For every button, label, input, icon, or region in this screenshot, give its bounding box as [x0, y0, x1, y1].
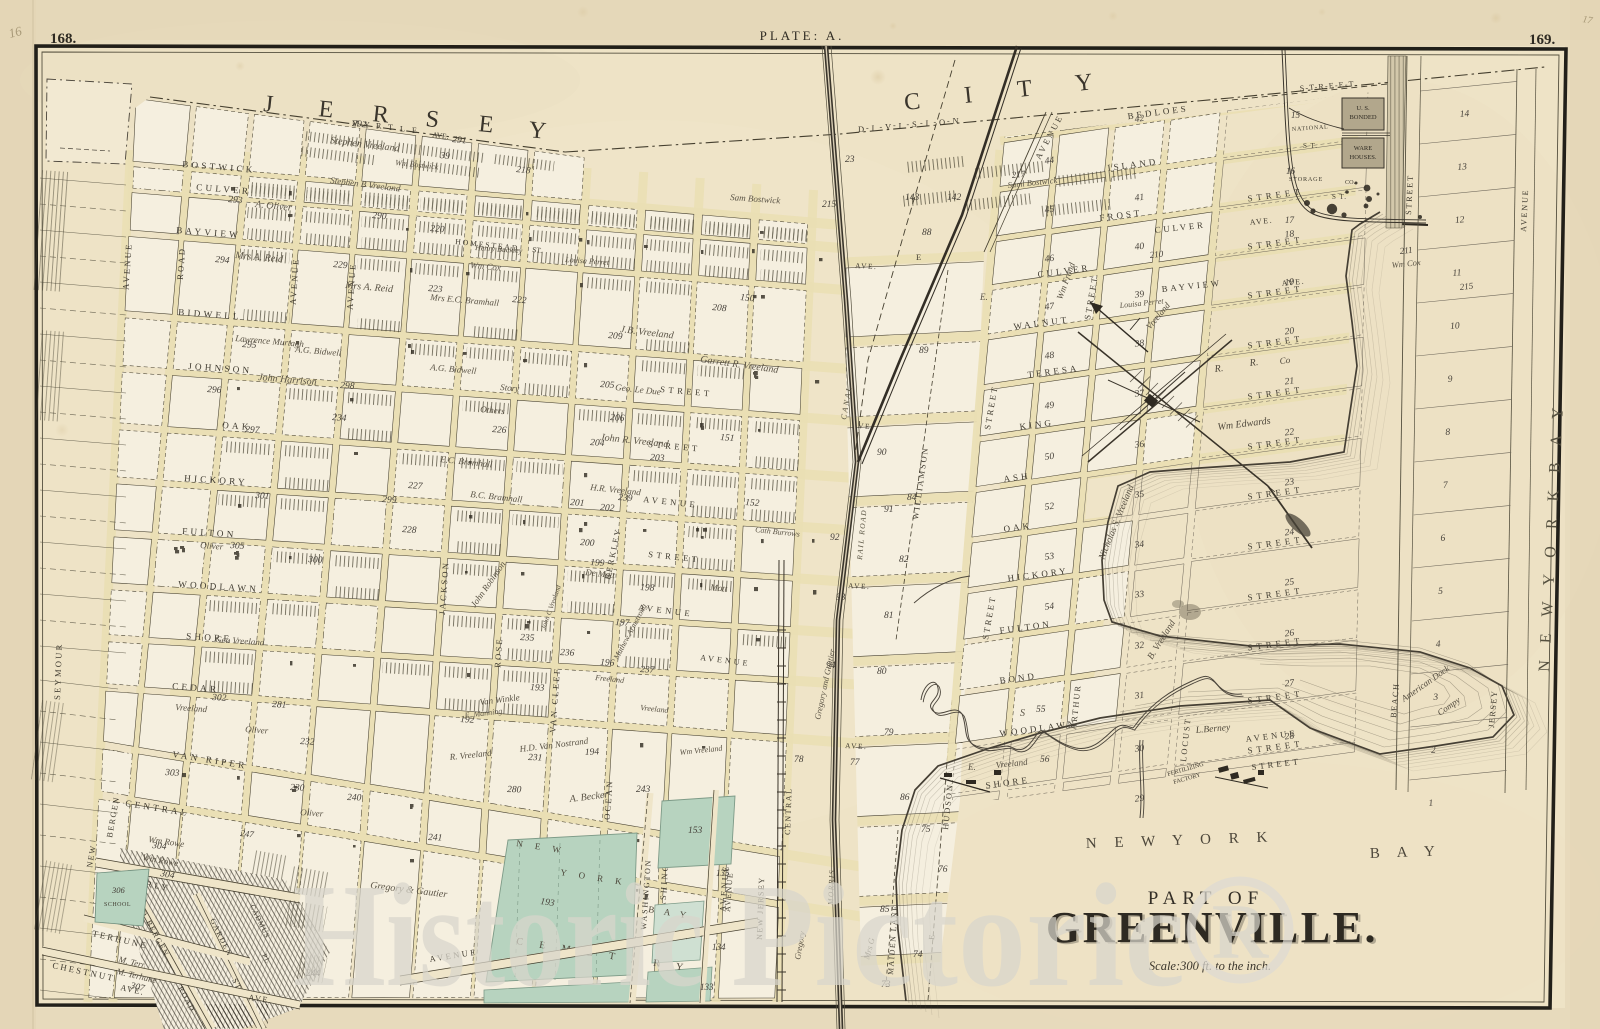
- svg-text:SEYMOUR: SEYMOUR: [52, 642, 64, 700]
- svg-text:E: E: [412, 126, 417, 135]
- svg-text:211: 211: [1399, 245, 1413, 256]
- svg-text:196: 196: [600, 658, 615, 669]
- svg-text:241: 241: [428, 833, 443, 843]
- svg-text:I: I: [926, 118, 929, 128]
- svg-text:201: 201: [570, 498, 585, 509]
- svg-text:46: 46: [1044, 254, 1055, 265]
- svg-text:STORAGE: STORAGE: [1289, 176, 1323, 183]
- svg-text:228: 228: [402, 525, 417, 536]
- svg-text:231: 231: [528, 753, 543, 763]
- svg-text:217: 217: [1011, 169, 1026, 180]
- svg-text:Mott: Mott: [709, 582, 728, 594]
- svg-text:53: 53: [1044, 552, 1055, 563]
- svg-text:77: 77: [850, 758, 861, 768]
- svg-text:33: 33: [1133, 590, 1145, 601]
- svg-text:290: 290: [372, 211, 387, 222]
- svg-text:281: 281: [272, 700, 287, 711]
- svg-text:15: 15: [1291, 110, 1301, 120]
- svg-text:230: 230: [290, 783, 305, 794]
- svg-text:E.: E.: [979, 292, 988, 302]
- svg-text:222: 222: [512, 295, 527, 306]
- svg-text:42: 42: [1134, 114, 1145, 125]
- svg-text:C: C: [903, 88, 922, 116]
- svg-text:R: R: [371, 101, 390, 129]
- svg-text:88: 88: [922, 228, 932, 238]
- svg-text:205: 205: [600, 380, 615, 391]
- svg-text:WARE: WARE: [1354, 145, 1372, 152]
- svg-text:S: S: [1020, 708, 1025, 719]
- svg-text:AVE.: AVE.: [855, 261, 878, 271]
- svg-text:56: 56: [1040, 755, 1050, 765]
- svg-text:134: 134: [712, 942, 726, 952]
- svg-text:Y: Y: [527, 117, 547, 145]
- svg-text:220: 220: [430, 224, 445, 235]
- svg-text:I: I: [872, 123, 875, 133]
- svg-text:305: 305: [229, 541, 245, 552]
- svg-text:89: 89: [919, 346, 929, 356]
- svg-text:ROSE: ROSE: [492, 637, 504, 668]
- svg-text:232: 232: [300, 737, 315, 748]
- svg-text:215: 215: [1459, 281, 1474, 292]
- svg-text:198: 198: [640, 583, 655, 594]
- svg-text:297: 297: [245, 425, 261, 436]
- svg-text:E: E: [317, 96, 334, 123]
- svg-text:91: 91: [884, 505, 894, 515]
- svg-text:50: 50: [1044, 452, 1055, 463]
- svg-text:26: 26: [1284, 628, 1295, 639]
- svg-text:R.: R.: [1248, 357, 1259, 369]
- svg-text:S: S: [424, 106, 440, 133]
- svg-text:193: 193: [530, 683, 545, 694]
- svg-text:218: 218: [516, 165, 531, 176]
- svg-text:R.: R.: [1213, 363, 1224, 375]
- svg-text:L: L: [400, 124, 405, 133]
- svg-text:194: 194: [585, 747, 600, 758]
- svg-text:152: 152: [745, 498, 760, 509]
- svg-text:D: D: [858, 124, 864, 134]
- svg-text:-: -: [866, 124, 869, 133]
- svg-text:21: 21: [1284, 376, 1295, 387]
- svg-text:20: 20: [1284, 326, 1295, 337]
- svg-text:V: V: [885, 122, 892, 132]
- svg-text:202: 202: [600, 503, 615, 514]
- svg-text:52: 52: [1044, 502, 1055, 513]
- svg-text:-: -: [880, 122, 883, 131]
- svg-text:-: -: [907, 120, 910, 129]
- svg-text:22: 22: [1284, 427, 1295, 438]
- svg-text:Pictoric: Pictoric: [731, 854, 1185, 1018]
- svg-text:-: -: [947, 116, 950, 125]
- svg-text:81: 81: [884, 611, 894, 621]
- svg-text:80: 80: [877, 667, 887, 677]
- svg-text:13: 13: [1457, 162, 1468, 173]
- svg-text:I: I: [899, 120, 902, 130]
- svg-text:44: 44: [1044, 156, 1055, 167]
- svg-text:78: 78: [794, 755, 804, 765]
- svg-text:49: 49: [1044, 401, 1055, 412]
- svg-text:Story: Story: [500, 382, 520, 394]
- svg-text:299: 299: [382, 495, 397, 506]
- svg-text:1: 1: [1428, 799, 1434, 809]
- svg-text:303: 303: [164, 768, 180, 779]
- svg-text:280: 280: [507, 785, 522, 795]
- svg-text:84: 84: [907, 493, 917, 503]
- svg-text:302: 302: [211, 693, 227, 704]
- svg-text:S T.: S T.: [1332, 193, 1347, 201]
- svg-text:135: 135: [716, 868, 730, 878]
- svg-text:206: 206: [610, 413, 625, 424]
- svg-text:153: 153: [688, 826, 703, 836]
- svg-text:168.: 168.: [50, 31, 77, 47]
- svg-text:32: 32: [1133, 641, 1145, 652]
- svg-text:227: 227: [408, 481, 424, 492]
- svg-text:PLATE: A.: PLATE: A.: [760, 28, 845, 43]
- svg-text:AVE.: AVE.: [848, 581, 871, 591]
- svg-text:90: 90: [877, 448, 887, 458]
- svg-text:236: 236: [560, 648, 575, 659]
- svg-text:235: 235: [520, 633, 535, 644]
- svg-text:208: 208: [712, 303, 727, 314]
- svg-text:210: 210: [1149, 249, 1164, 260]
- svg-text:T: T: [1016, 76, 1034, 103]
- svg-text:301: 301: [254, 491, 270, 502]
- svg-text:54: 54: [1044, 602, 1055, 613]
- svg-text:M: M: [352, 119, 359, 128]
- svg-text:306: 306: [111, 885, 126, 895]
- svg-text:-: -: [893, 121, 896, 130]
- svg-text:23: 23: [1284, 477, 1295, 488]
- svg-text:E: E: [477, 111, 494, 138]
- svg-text:CO.: CO.: [1345, 179, 1356, 186]
- svg-text:92: 92: [830, 533, 840, 543]
- svg-text:S: S: [912, 119, 917, 129]
- svg-text:25: 25: [1284, 577, 1295, 588]
- svg-text:ST.: ST.: [532, 245, 543, 255]
- svg-text:55: 55: [1036, 705, 1046, 715]
- svg-text:17: 17: [1285, 215, 1295, 225]
- svg-text:23: 23: [845, 155, 855, 165]
- svg-text:AVE.: AVE.: [845, 741, 868, 751]
- svg-text:E: E: [916, 252, 921, 262]
- svg-text:237: 237: [640, 665, 656, 676]
- svg-text:T: T: [388, 123, 393, 132]
- svg-text:14: 14: [1459, 109, 1470, 120]
- svg-text:Y: Y: [1074, 69, 1094, 97]
- svg-text:298: 298: [340, 381, 355, 392]
- svg-text:Co: Co: [1279, 355, 1291, 366]
- svg-text:79: 79: [884, 728, 894, 738]
- svg-text:24: 24: [1284, 527, 1295, 538]
- svg-text:R: R: [1212, 888, 1270, 975]
- svg-text:Historic: Historic: [293, 854, 704, 1018]
- svg-text:U. S.: U. S.: [1356, 105, 1370, 112]
- svg-text:Oliver: Oliver: [300, 807, 324, 819]
- svg-text:40: 40: [1134, 242, 1145, 253]
- svg-text:39: 39: [439, 151, 451, 162]
- svg-text:31: 31: [1133, 691, 1145, 702]
- svg-text:Y: Y: [364, 120, 370, 129]
- svg-text:16: 16: [1286, 166, 1296, 176]
- svg-text:BONDED: BONDED: [1349, 114, 1376, 121]
- svg-text:293: 293: [228, 195, 243, 206]
- svg-text:10: 10: [1450, 321, 1461, 332]
- svg-text:229: 229: [333, 260, 348, 271]
- svg-text:247: 247: [240, 828, 255, 839]
- svg-text:82: 82: [899, 555, 909, 565]
- svg-text:Oliver: Oliver: [200, 540, 224, 552]
- svg-text:41: 41: [1134, 193, 1145, 204]
- svg-text:B A Y: B A Y: [1370, 843, 1442, 862]
- svg-text:CENTRAL: CENTRAL: [783, 787, 794, 835]
- svg-text:226: 226: [492, 425, 507, 436]
- svg-text:240: 240: [347, 793, 362, 803]
- svg-text:18: 18: [1284, 229, 1295, 240]
- svg-text:203: 203: [650, 453, 665, 464]
- svg-text:296: 296: [207, 385, 222, 396]
- svg-text:36: 36: [1133, 440, 1145, 451]
- svg-text:151: 151: [720, 433, 735, 444]
- svg-text:SCHOOL: SCHOOL: [104, 902, 131, 908]
- svg-text:300: 300: [307, 555, 323, 566]
- svg-text:O: O: [939, 117, 945, 127]
- svg-text:48: 48: [1044, 351, 1055, 362]
- svg-text:200: 200: [580, 538, 595, 549]
- svg-text:-: -: [920, 119, 923, 128]
- svg-text:86: 86: [900, 793, 910, 803]
- svg-text:150: 150: [740, 293, 755, 304]
- svg-text:169.: 169.: [1529, 32, 1556, 48]
- svg-text:Oliver: Oliver: [245, 724, 269, 736]
- svg-text:234: 234: [332, 413, 347, 424]
- svg-text:12: 12: [1455, 215, 1466, 226]
- svg-text:11: 11: [1452, 268, 1462, 279]
- svg-text:3: 3: [1432, 693, 1439, 703]
- svg-text:N: N: [953, 116, 959, 126]
- svg-text:294: 294: [215, 255, 230, 266]
- svg-text:HOUSES.: HOUSES.: [1350, 154, 1377, 161]
- svg-text:S T.: S T.: [1303, 142, 1318, 150]
